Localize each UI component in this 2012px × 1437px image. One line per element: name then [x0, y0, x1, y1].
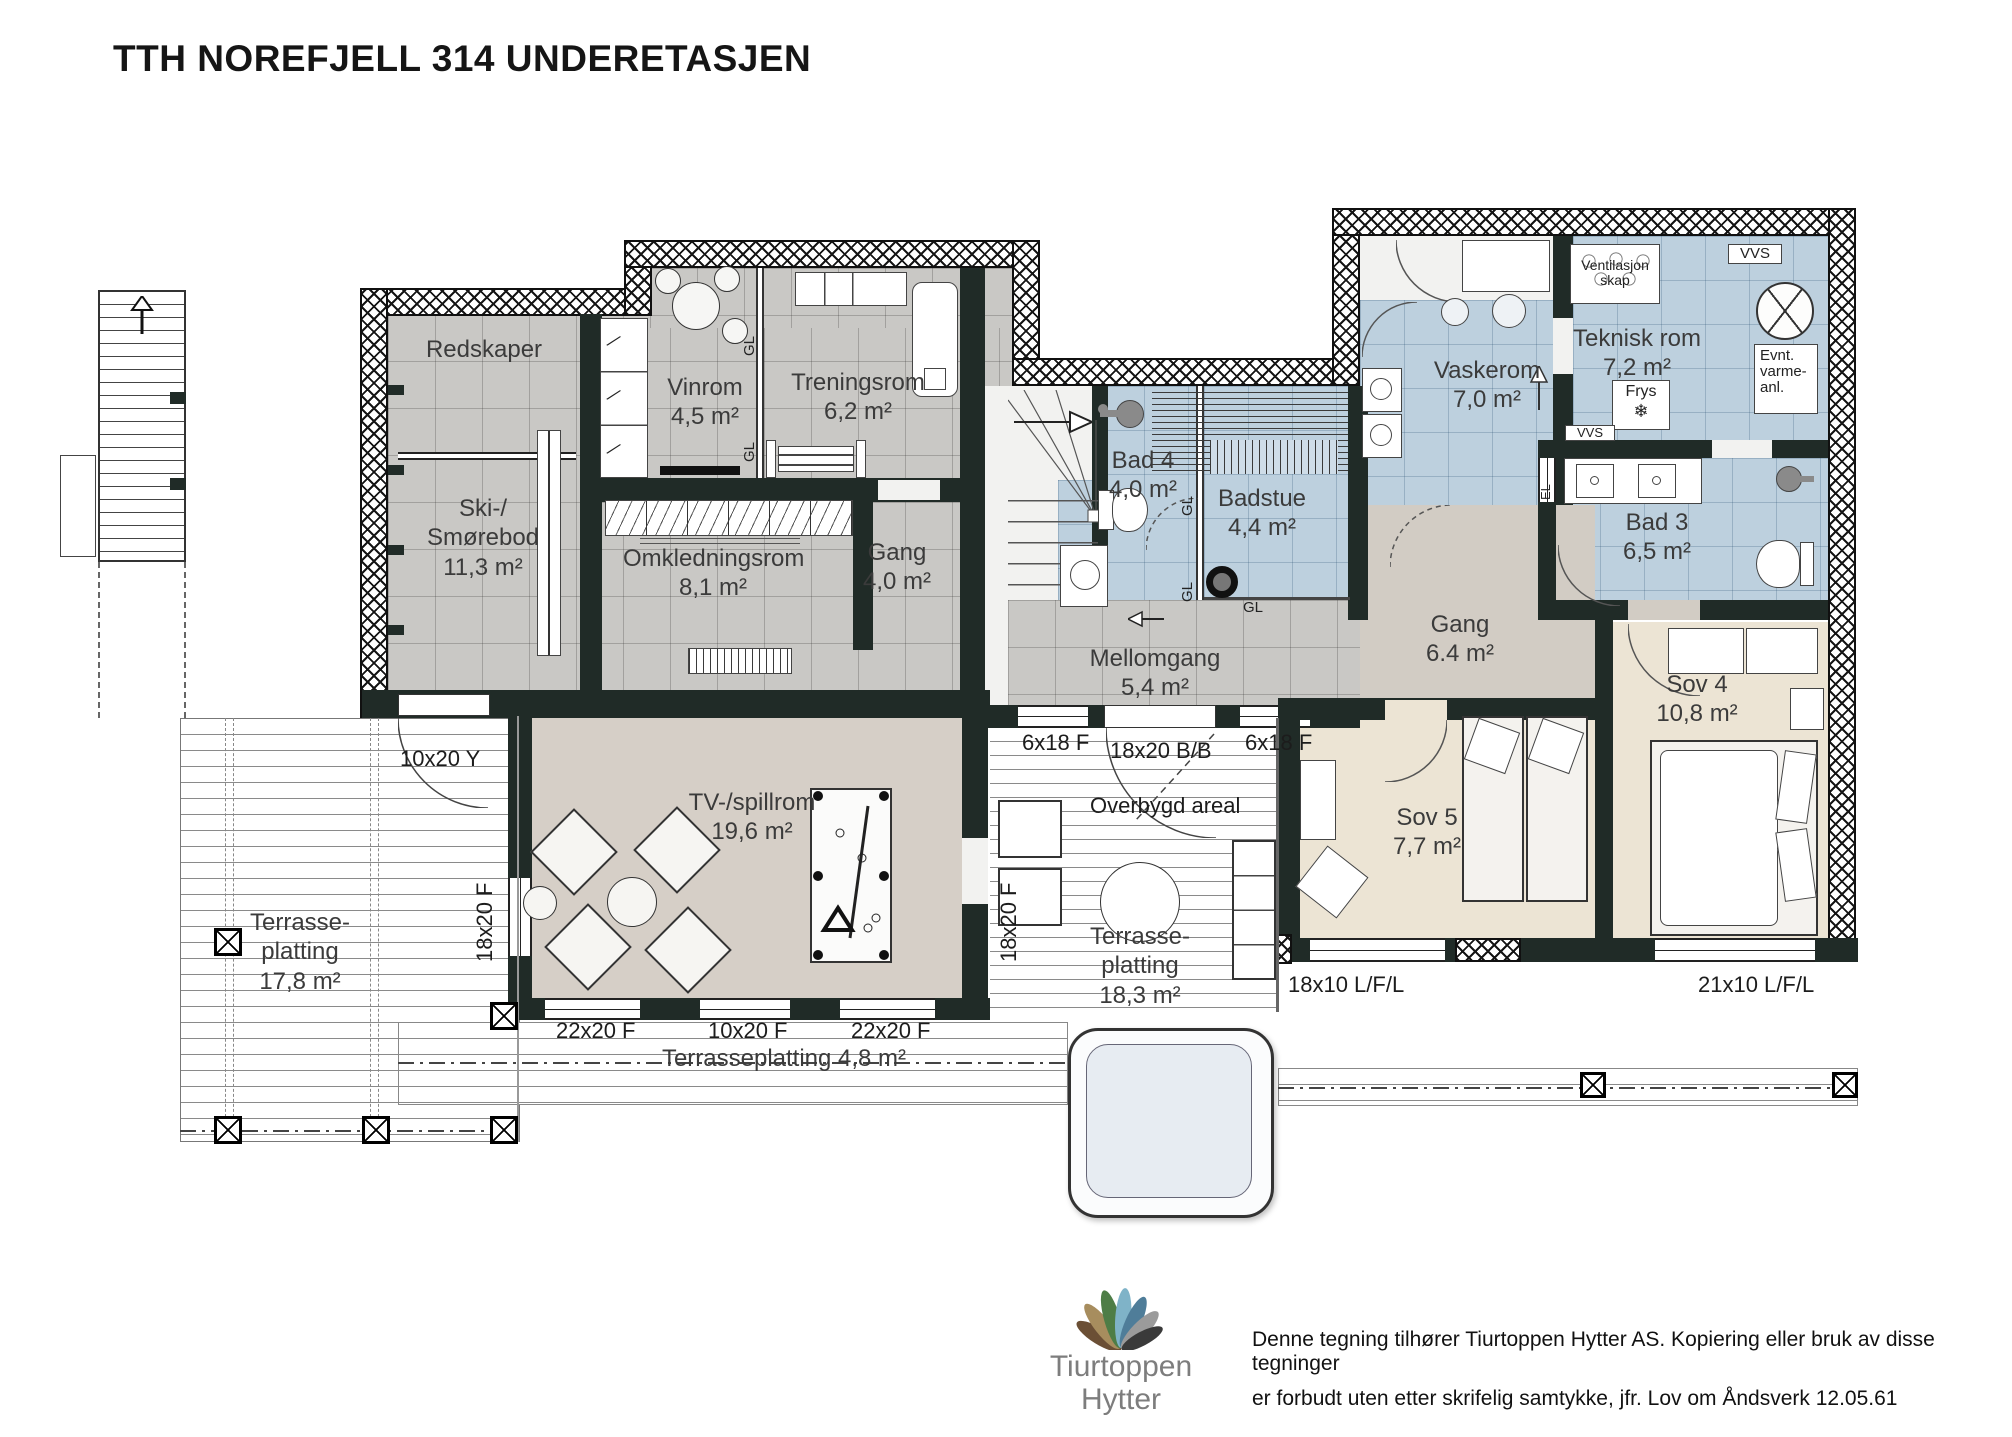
label-sov5: Sov 57,7 m²: [1377, 803, 1477, 862]
gl-tag: GL: [742, 322, 758, 356]
shower-arm-icon: [1796, 476, 1814, 482]
window-10x20: [700, 998, 790, 1020]
door-gap-10x20Y: [398, 694, 490, 716]
outer-wall: [624, 240, 1040, 268]
deck-edge: [1276, 718, 1279, 1012]
legal-line2: er forbudt uten etter skrifelig samtykke…: [1252, 1387, 1972, 1411]
deck-chair: [998, 800, 1062, 858]
label-sov4: Sov 410,8 m²: [1637, 670, 1757, 729]
vvs-label: VVS: [1728, 246, 1782, 262]
label-teknisk: Teknisk rom7,2 m²: [1562, 324, 1712, 383]
label-badstue: Badstue4,4 m²: [1212, 484, 1312, 543]
brand-logo: Tiurtoppen Hytter: [1016, 1288, 1226, 1416]
shower-icon: [1116, 400, 1144, 428]
barbell-plate: [766, 440, 776, 478]
gl-tag: GL: [742, 428, 758, 462]
dim-18x20F-left: 18x20 F: [472, 882, 498, 962]
door-arc-vaskerom: [1390, 505, 1452, 567]
label-terrasse-mid: Terrasse- platting18,3 m²: [1060, 922, 1220, 1010]
door-gap: [1712, 440, 1772, 458]
terrace-edge: [517, 716, 519, 1142]
dim-18x10LFL: 18x10 L/F/L: [1288, 972, 1404, 998]
barbell: [778, 446, 854, 472]
outer-wall: [1828, 208, 1856, 962]
label-overbygd: Overbygd areal: [1090, 793, 1240, 819]
label-mellomgang: Mellomgang5,4 m²: [1080, 644, 1230, 703]
entry-wardrobe: [1462, 240, 1550, 292]
ventilation-label: Ventilasjon skap: [1570, 258, 1660, 287]
deck-post: [214, 1116, 242, 1144]
legal-line1: Denne tegning tilhører Tiurtoppen Hytter…: [1252, 1328, 1972, 1376]
window-6x18: [1018, 705, 1088, 728]
deck-post: [1580, 1072, 1606, 1098]
outer-wall: [360, 288, 652, 316]
dresser: [1746, 628, 1818, 674]
side-table: [523, 886, 557, 920]
sauna-stove-icon: [1206, 566, 1238, 598]
door-gap: [878, 480, 940, 500]
wall: [1595, 602, 1613, 938]
label-redskaper: Redskaper: [404, 335, 564, 364]
fan-icon: [1756, 282, 1814, 340]
stair-direction-arrow: [1014, 408, 1092, 436]
sink-icon: [1070, 560, 1100, 590]
label-bad3: Bad 36,5 m²: [1607, 508, 1707, 567]
door-arc-sov5: [1385, 720, 1447, 782]
legal-text: Denne tegning tilhører Tiurtoppen Hytter…: [1252, 1328, 1972, 1411]
dim-22x20F: 22x20 F: [556, 1018, 636, 1044]
barbell-plate: [856, 440, 866, 478]
wall-stub: [388, 385, 404, 395]
label-bad4: Bad 44,0 m²: [1093, 446, 1193, 505]
window-21x10: [1655, 938, 1815, 962]
label-terrasse-strip: Terrasseplatting 4,8 m²: [634, 1044, 934, 1073]
shower-head-icon: [1492, 294, 1526, 328]
washer-door-icon: [1370, 378, 1392, 400]
wall: [508, 715, 532, 1015]
coffee-table: [607, 877, 657, 927]
deck-post: [490, 1002, 518, 1030]
tiurtoppen-logo-icon: [1051, 1288, 1191, 1350]
label-ski: Ski-/ Smørebod11,3 m²: [393, 494, 573, 582]
outer-wall: [1012, 358, 1360, 386]
wall-stub: [388, 465, 404, 475]
toilet-bowl: [1756, 540, 1800, 588]
window-18x10: [1310, 938, 1445, 962]
deck-post: [362, 1116, 390, 1144]
floor-plan: TTH NOREFJELL 314 UNDERETASJEN: [0, 0, 2012, 1437]
drain-icon: [1590, 476, 1599, 485]
label-tv: TV-/spillrom19,6 m²: [672, 788, 832, 847]
dryer-door-icon: [1370, 424, 1392, 446]
label-treningsrom: Treningsrom6,2 m²: [783, 368, 933, 427]
heater-label: Evnt. varme- anl.: [1760, 348, 1807, 395]
wall: [1538, 440, 1828, 458]
gl-tag: GL: [1180, 482, 1196, 516]
vvs-label: VVS: [1565, 426, 1615, 440]
table: [672, 282, 720, 330]
toilet-tank: [1800, 542, 1814, 586]
weight-bench: [795, 272, 907, 306]
chair: [714, 266, 740, 292]
door-gap: [1628, 600, 1700, 620]
wall-stub: [388, 625, 404, 635]
chair: [655, 268, 681, 294]
bench: [660, 466, 740, 475]
label-vinrom: Vinrom4,5 m²: [635, 373, 775, 432]
drain-icon: [1652, 476, 1661, 485]
label-omkledningsrom: Omkledningsrom8,1 m²: [623, 544, 803, 603]
outer-wall: [1332, 208, 1856, 236]
snowflake-icon: ❄: [1612, 402, 1670, 421]
wall: [960, 268, 985, 715]
sauna-bench-low: [1210, 440, 1338, 474]
wall: [580, 314, 602, 690]
deck-post: [490, 1116, 518, 1144]
post-stub: [170, 392, 186, 404]
stair-dash-line: [184, 562, 186, 718]
el-label: EL: [1539, 462, 1553, 500]
outer-wall: [360, 288, 388, 718]
stair-up-arrow-icon: [116, 296, 168, 336]
flow-arrow-icon: [1128, 610, 1164, 628]
bench: [688, 648, 792, 674]
dim-18x20F-deck: 18x20 F: [996, 882, 1022, 962]
door-gap-18x20: [1104, 705, 1216, 728]
freezer-label: Frys: [1612, 384, 1670, 401]
walkway-centerline: [1278, 1085, 1858, 1089]
nightstand: [1790, 688, 1824, 730]
lockers: [605, 500, 853, 536]
stair-landing: [60, 455, 96, 557]
dim-10x20Y: 10x20 Y: [400, 746, 480, 772]
deck-sofa: [1232, 840, 1276, 980]
shower-arc: [1362, 302, 1417, 357]
dresser: [1668, 628, 1744, 674]
post-stub: [170, 478, 186, 490]
dim-10x20F: 10x20 F: [708, 1018, 788, 1044]
stair-dash-line: [98, 562, 100, 718]
page-title: TTH NOREFJELL 314 UNDERETASJEN: [113, 38, 811, 80]
dim-21x10LFL: 21x10 L/F/L: [1698, 972, 1814, 998]
hot-tub-inner: [1086, 1044, 1252, 1198]
shower-head-icon: [1441, 298, 1469, 326]
window-22x20: [840, 998, 935, 1020]
dim-22x20F: 22x20 F: [851, 1018, 931, 1044]
deck-post: [1832, 1072, 1858, 1098]
brand-name-line1: Tiurtoppen: [1016, 1350, 1226, 1383]
dim-6x18F: 6x18 F: [1245, 730, 1312, 756]
dim-6x18F: 6x18 F: [1022, 730, 1089, 756]
door-gap: [1385, 700, 1447, 720]
label-gang-v: Gang4,0 m²: [847, 538, 947, 597]
gl-tag: GL: [1243, 600, 1263, 616]
label-vaskerom: Vaskerom7,0 m²: [1412, 356, 1562, 415]
door-arc-entry: [1396, 240, 1458, 302]
dim-18x20BB: 18x20 B/B: [1110, 738, 1212, 764]
brand-name-line2: Hytter: [1016, 1383, 1226, 1416]
window-22x20: [545, 998, 640, 1020]
mattress: [1660, 750, 1778, 926]
door-gap: [962, 838, 988, 904]
desk: [1300, 760, 1336, 840]
gl-tag: GL: [1180, 568, 1196, 602]
label-terrasse-left: Terrasse- platting17,8 m²: [220, 908, 380, 996]
label-gang-h: Gang6.4 m²: [1410, 610, 1510, 669]
wall-hatched-pillar: [1455, 938, 1521, 962]
shower-valve-icon: [1098, 404, 1108, 414]
